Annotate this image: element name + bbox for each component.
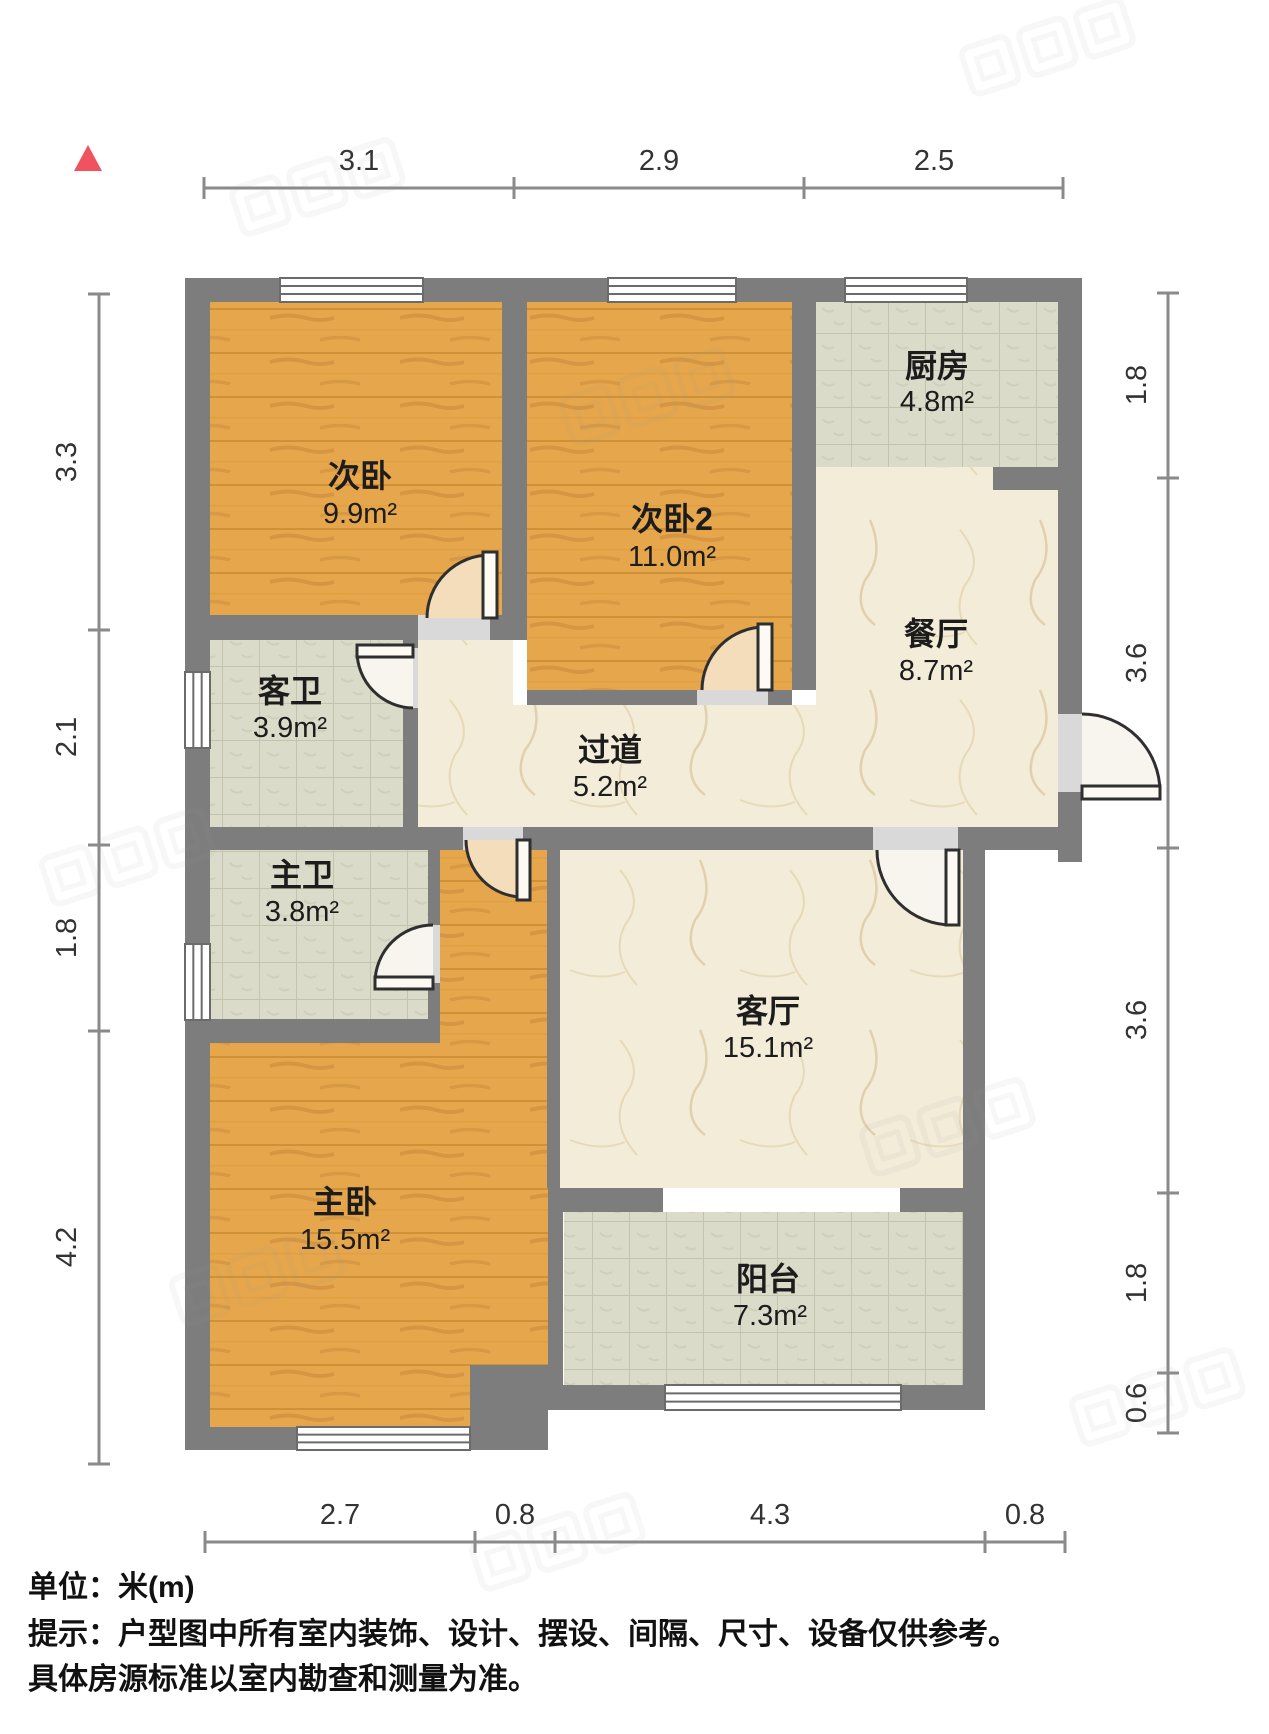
wall xyxy=(185,827,463,850)
master-bathroom-label: 主卫 xyxy=(270,857,334,893)
second-bedroom-door-panel xyxy=(483,552,497,618)
master-bedroom-label: 主卧 xyxy=(313,1184,377,1220)
guest-bath-door-panel xyxy=(357,645,413,657)
balcony-window-frame xyxy=(665,1385,901,1410)
disclaimer-line-1: 提示：户型图中所有室内装饰、设计、摆设、间隔、尺寸、设备仅供参考。 xyxy=(28,1617,1018,1651)
dimension-value: 3.3 xyxy=(51,442,83,482)
kitchen-floor xyxy=(816,302,1058,467)
unit-note: 单位：米(m) xyxy=(28,1570,195,1604)
living-room-door-panel xyxy=(946,850,959,925)
hallway-label: 过道 xyxy=(578,732,642,768)
wall xyxy=(185,615,418,640)
kitchen-label: 厨房 xyxy=(905,348,969,384)
master-bedroom-window xyxy=(297,1427,470,1450)
wall xyxy=(900,1188,963,1212)
wall xyxy=(547,850,560,1188)
wall xyxy=(958,827,1082,850)
wall xyxy=(527,690,697,705)
second-bedroom-area: 9.9m² xyxy=(323,498,397,530)
master-bath-window xyxy=(185,944,210,1020)
guest-bath-window-frame xyxy=(185,672,210,748)
dimension-value: 1.8 xyxy=(1121,365,1153,405)
second-bedroom-2-window-frame xyxy=(608,278,736,302)
second-bedroom-2-label: 次卧2 xyxy=(631,501,713,537)
dimension-value: 2.9 xyxy=(639,145,679,177)
dimension-value: 2.5 xyxy=(914,145,954,177)
second-bedroom-2-door-opening xyxy=(697,690,768,705)
second-bedroom-2-area: 11.0m² xyxy=(628,541,716,573)
floor-plan-image: 次卧9.9m²次卧211.0m²厨房4.8m²餐厅8.7m²客卫3.9m²过道5… xyxy=(0,0,1269,1729)
wall xyxy=(548,1188,563,1410)
dimension-value: 3.6 xyxy=(1121,1000,1153,1040)
floorplan-page: 次卧9.9m²次卧211.0m²厨房4.8m²餐厅8.7m²客卫3.9m²过道5… xyxy=(0,0,1269,1729)
dining-room-label: 餐厅 xyxy=(904,616,968,652)
second-bedroom-door-opening xyxy=(418,615,490,640)
dimension-value: 2.7 xyxy=(320,1499,360,1531)
second-bedroom-label: 次卧 xyxy=(328,458,392,494)
wall xyxy=(502,302,527,640)
wall xyxy=(470,1365,548,1450)
wall xyxy=(548,1188,663,1212)
entry-door-opening xyxy=(1058,714,1082,792)
living-room-door-opening xyxy=(873,827,958,850)
balcony-floor xyxy=(564,1212,963,1385)
master-bedroom-window-frame xyxy=(297,1427,470,1450)
second-bedroom-2-door-panel xyxy=(758,624,772,690)
master-bath-window-frame xyxy=(185,944,210,1020)
living-room-label: 客厅 xyxy=(736,993,800,1029)
entry-door-panel xyxy=(1082,786,1160,799)
dimension-value: 1.8 xyxy=(51,918,83,958)
guest-bathroom-label: 客卫 xyxy=(258,673,322,709)
dimension-value: 2.1 xyxy=(51,717,83,757)
wall xyxy=(428,850,440,925)
master-bath-door-panel xyxy=(375,977,433,989)
dimension-value: 4.3 xyxy=(750,1499,790,1531)
disclaimer-line-2: 具体房源标准以室内勘查和测量为准。 xyxy=(28,1662,538,1696)
wall xyxy=(993,467,1058,490)
guest-bathroom-area: 3.9m² xyxy=(253,712,327,744)
dimension-value: 3.6 xyxy=(1121,643,1153,683)
wall xyxy=(403,705,418,827)
wall xyxy=(210,1019,440,1043)
second-bedroom-2-window xyxy=(608,278,736,302)
kitchen-area: 4.8m² xyxy=(900,386,974,418)
second-bedroom-window-frame xyxy=(280,278,423,302)
dimension-value: 1.8 xyxy=(1121,1263,1153,1303)
second-bedroom-window xyxy=(280,278,423,302)
balcony-label: 阳台 xyxy=(736,1261,800,1297)
guest-bath-window xyxy=(185,672,210,748)
master-bedroom-door-panel xyxy=(517,840,530,900)
balcony-window xyxy=(665,1385,901,1410)
master-bathroom-area: 3.8m² xyxy=(265,896,339,928)
living-room-area: 15.1m² xyxy=(723,1032,814,1064)
master-bedroom-area: 15.5m² xyxy=(300,1224,391,1256)
wall xyxy=(523,827,873,850)
balcony-area: 7.3m² xyxy=(733,1300,807,1332)
dimension-value: 0.8 xyxy=(1005,1499,1045,1531)
wall xyxy=(768,690,792,705)
kitchen-window-frame xyxy=(845,278,967,302)
kitchen-window xyxy=(845,278,967,302)
dining-room-area: 8.7m² xyxy=(899,655,973,687)
wall xyxy=(792,302,816,690)
hallway-area: 5.2m² xyxy=(573,771,647,803)
dimension-value: 4.2 xyxy=(51,1227,83,1267)
